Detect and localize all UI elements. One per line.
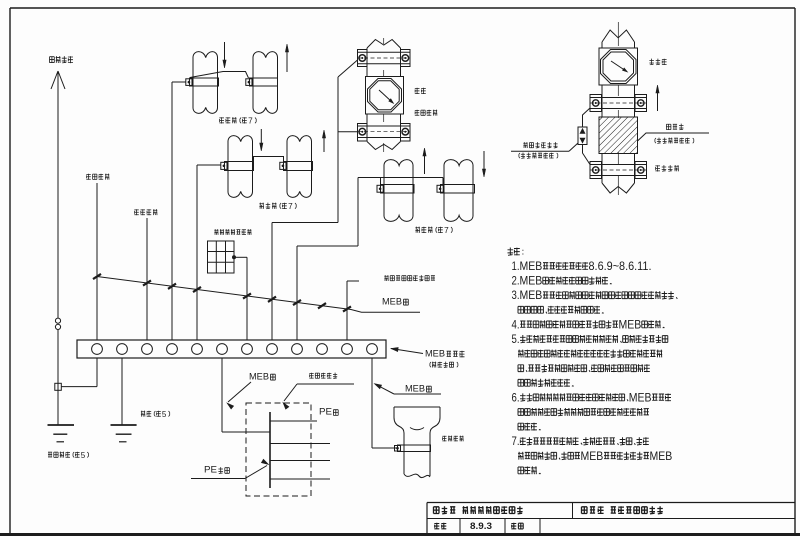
svg-text:6.: 6. xyxy=(512,391,520,404)
svg-text:3.: 3. xyxy=(512,289,520,302)
svg-text:7.: 7. xyxy=(512,435,520,448)
svg-text:MEB: MEB xyxy=(382,296,402,307)
svg-text:1.: 1. xyxy=(512,260,520,273)
svg-text:MEB: MEB xyxy=(650,450,673,463)
svg-text:7: 7 xyxy=(288,202,293,211)
svg-text:MEB: MEB xyxy=(249,371,269,382)
svg-text:MEB: MEB xyxy=(520,289,543,302)
svg-text:5.: 5. xyxy=(512,333,520,346)
svg-text:MEB: MEB xyxy=(425,348,445,359)
svg-text:5: 5 xyxy=(162,410,167,419)
svg-text:8.9.3: 8.9.3 xyxy=(470,521,492,532)
svg-text:5: 5 xyxy=(81,451,86,460)
svg-text:2.: 2. xyxy=(512,275,520,288)
svg-text:MEB: MEB xyxy=(581,450,604,463)
svg-text:8.6.9~8.6.11.: 8.6.9~8.6.11. xyxy=(589,260,652,273)
svg-text:4.: 4. xyxy=(512,318,520,331)
svg-text:MEB: MEB xyxy=(629,391,652,404)
svg-text:MEB: MEB xyxy=(520,260,543,273)
svg-text:7: 7 xyxy=(248,117,253,126)
svg-text:7: 7 xyxy=(444,226,449,235)
svg-text:PE: PE xyxy=(319,407,332,417)
svg-text:PE: PE xyxy=(204,465,217,475)
svg-text:MEB: MEB xyxy=(619,318,642,331)
svg-text:MEB: MEB xyxy=(405,383,425,394)
svg-text:MEB: MEB xyxy=(520,275,543,288)
